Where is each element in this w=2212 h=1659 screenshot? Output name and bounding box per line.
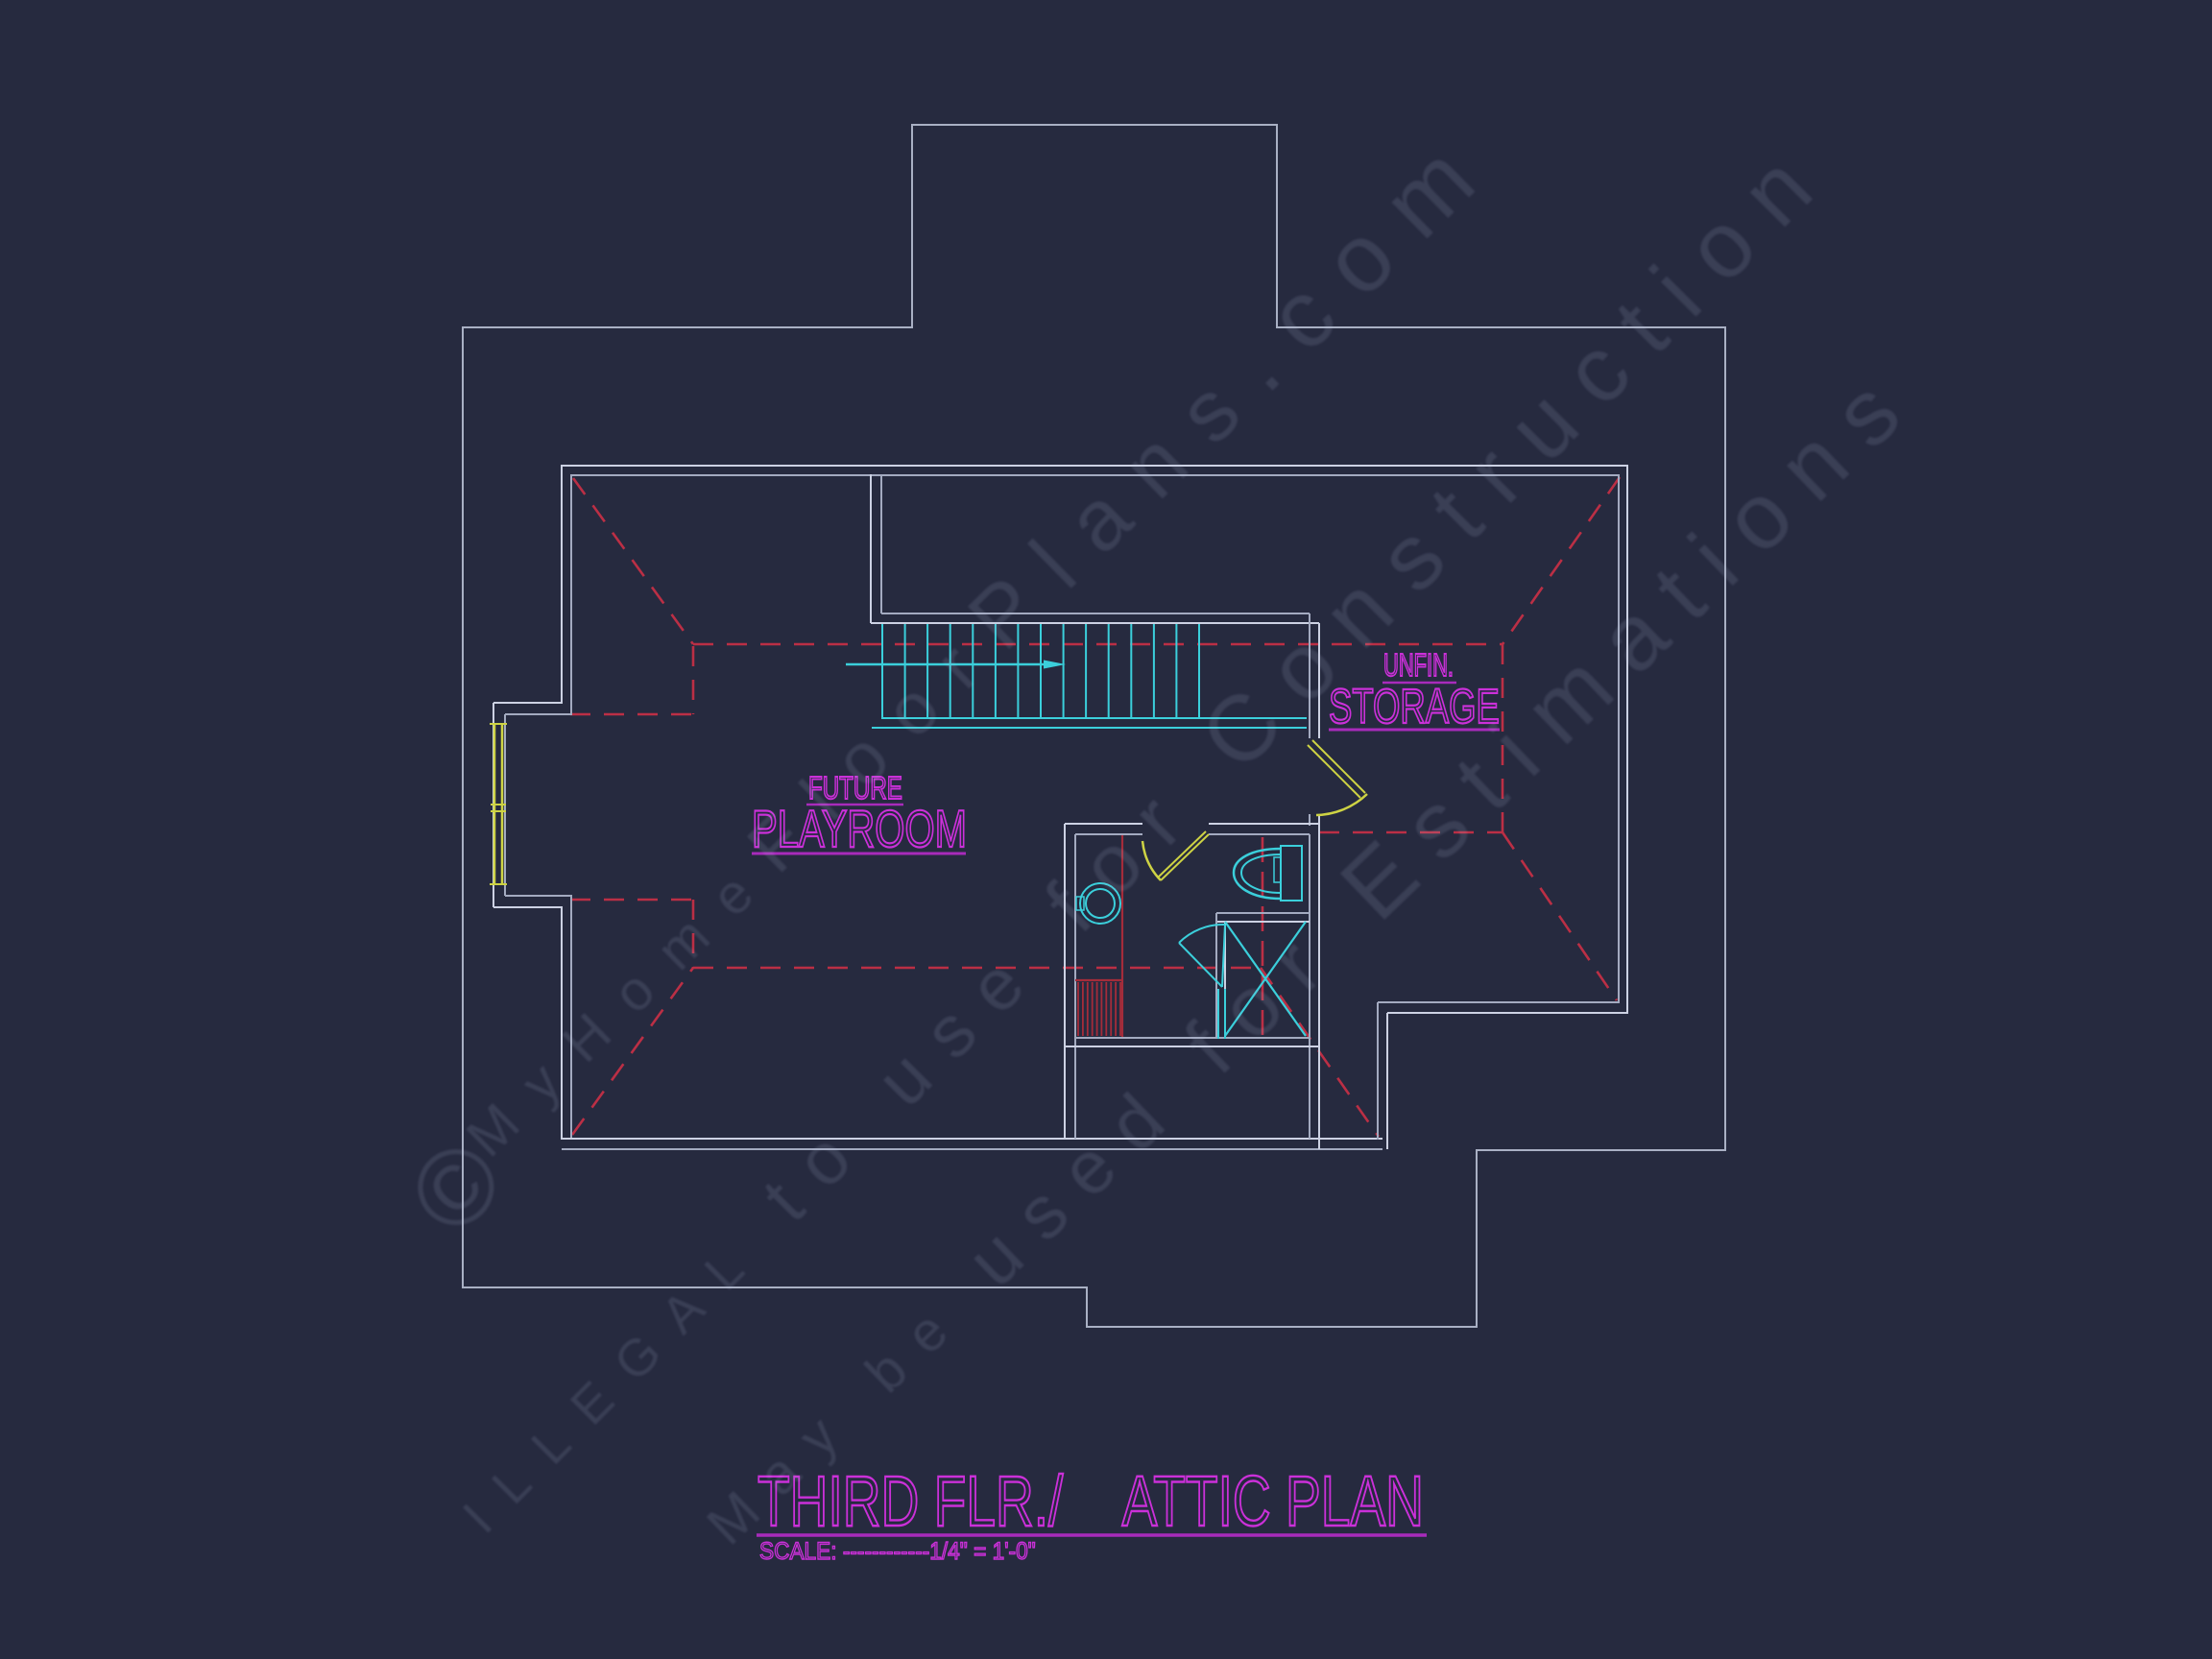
svg-text:UNFIN.: UNFIN. (1383, 648, 1454, 684)
svg-text:SCALE: ------------1/4" = 1'-0: SCALE: ------------1/4" = 1'-0" (759, 1538, 1036, 1565)
svg-text:THIRD FLR./ ATTIC PLAN: THIRD FLR./ ATTIC PLAN (757, 1461, 1424, 1541)
